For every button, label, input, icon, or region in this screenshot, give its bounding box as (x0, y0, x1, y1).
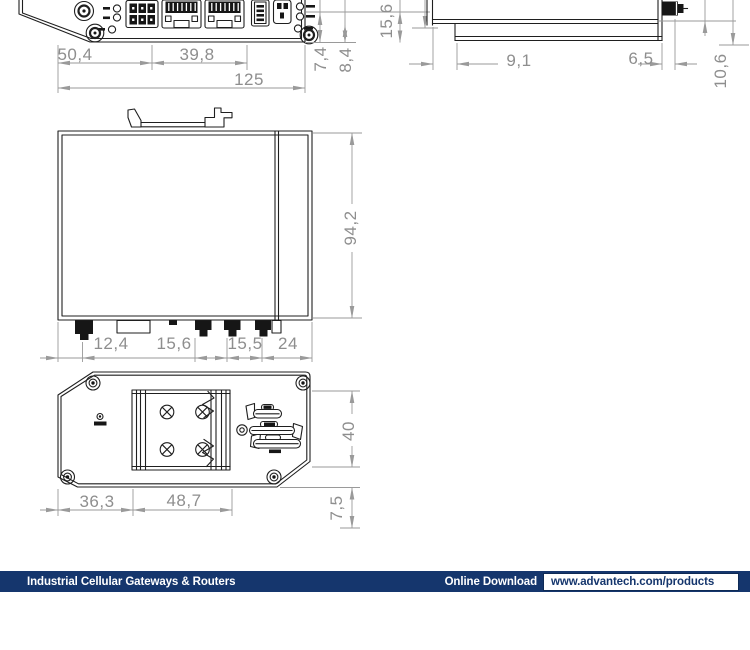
dim-label-rear-mid: 48,7 (166, 491, 201, 511)
datasheet-dimension-page: 50,4 39,8 125 7,4 8,4 15,6 9,1 6,5 10,6 … (0, 0, 750, 650)
dim-label-front-width-left: 50,4 (57, 45, 92, 65)
footer-url-text: www.advantech.com/products (544, 576, 714, 588)
din-rail-bracket (132, 390, 230, 470)
bracket-screw-3 (160, 443, 174, 457)
side-antenna-connector-icon (662, 2, 688, 16)
antenna-connector-left2-icon (86, 24, 104, 42)
dim-label-side-conn-height: 10,6 (711, 53, 731, 88)
dim-label-bottom-c1: 12,4 (93, 334, 128, 354)
footer-category-label: Industrial Cellular Gateways & Routers (27, 571, 235, 592)
dim-label-front-v1: 7,4 (311, 46, 331, 71)
usb-port-icon (252, 0, 270, 26)
dim-label-front-width-total: 125 (234, 70, 264, 90)
dim-label-rear-left: 36,3 (79, 492, 114, 512)
side-view-dimensions (409, 0, 749, 70)
side-view (409, 0, 749, 70)
sim-slot-cluster (237, 404, 303, 454)
ethernet-port-1-icon (162, 0, 201, 28)
dim-label-bottom-c2: 15,6 (156, 334, 191, 354)
dim-label-front-v3: 15,6 (377, 3, 397, 38)
front-indicators-left (98, 5, 121, 33)
power-terminal-icon (126, 1, 158, 28)
io-connector-icon (274, 0, 292, 24)
footer-bar: Industrial Cellular Gateways & Routers O… (0, 571, 750, 592)
antenna-connector-left-icon (75, 2, 94, 21)
dim-label-side-right: 6,5 (628, 49, 653, 69)
dim-label-bottom-c3: 15,5 (227, 334, 262, 354)
footer-download-label: Online Download (445, 571, 537, 592)
footer-url-box[interactable]: www.advantech.com/products (543, 573, 739, 591)
din-clip-profile (128, 108, 232, 127)
dim-label-rear-height: 40 (339, 421, 359, 441)
bracket-screw-1 (160, 405, 174, 419)
dimension-drawing (0, 0, 750, 650)
dim-label-rear-clip: 7,5 (327, 495, 347, 520)
dim-label-body-height: 94,2 (341, 210, 361, 245)
dim-label-bottom-c4: 24 (278, 334, 298, 354)
left-elevation-view (40, 108, 362, 362)
ethernet-port-2-icon (205, 0, 244, 28)
reset-button-icon (94, 414, 107, 426)
dim-label-front-v2: 8,4 (336, 47, 356, 72)
dim-label-side-offset: 9,1 (506, 51, 531, 71)
dim-label-front-width-mid: 39,8 (179, 45, 214, 65)
